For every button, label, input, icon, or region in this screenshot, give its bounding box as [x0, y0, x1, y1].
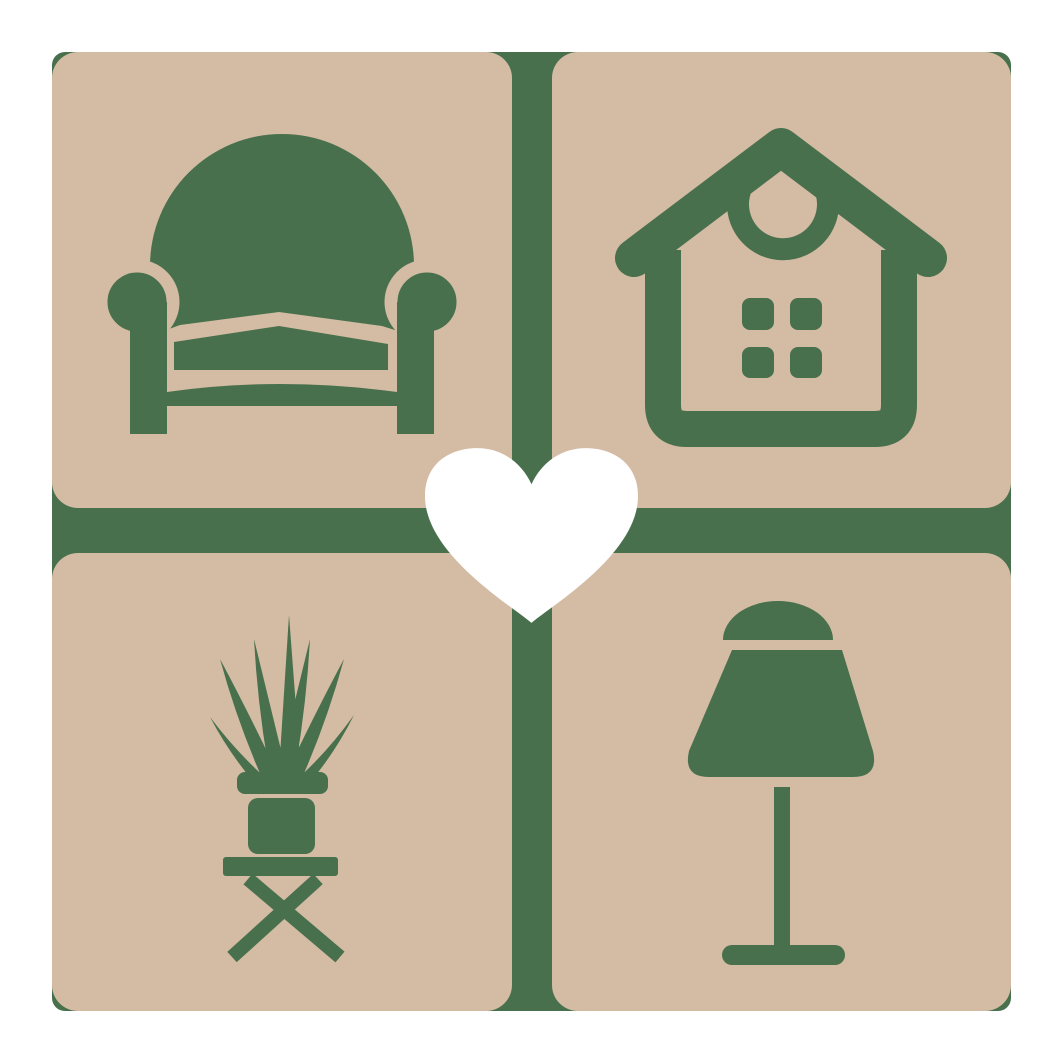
tile-armchair: [52, 52, 512, 508]
house-icon: [552, 52, 1011, 508]
tile-house: [552, 52, 1011, 508]
heart-icon: [423, 446, 640, 625]
logo-canvas: [0, 0, 1063, 1063]
armchair-icon: [52, 52, 512, 508]
